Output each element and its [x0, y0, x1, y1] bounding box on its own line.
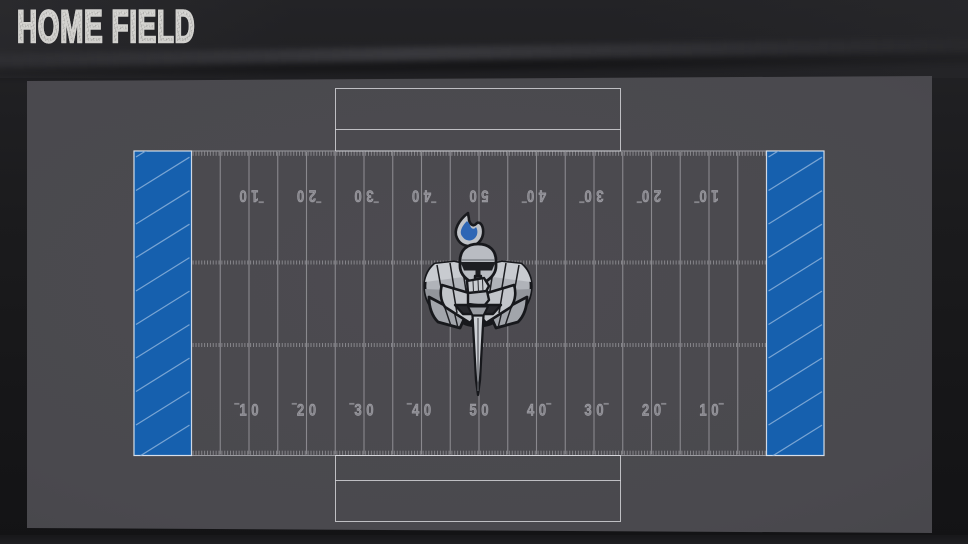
svg-text:0: 0: [354, 186, 361, 205]
svg-text:0: 0: [481, 401, 488, 420]
svg-text:3: 3: [596, 186, 603, 205]
svg-text:0: 0: [366, 401, 373, 420]
svg-text:0: 0: [654, 401, 661, 420]
svg-text:0: 0: [309, 401, 316, 420]
svg-text:1: 1: [711, 186, 719, 205]
svg-text:1: 1: [239, 401, 247, 420]
svg-text:0: 0: [584, 186, 591, 205]
svg-text:2: 2: [642, 401, 649, 420]
svg-text:0: 0: [596, 401, 603, 420]
svg-text:2: 2: [309, 186, 316, 205]
svg-text:0: 0: [527, 186, 534, 205]
svg-text:0: 0: [642, 186, 649, 205]
svg-text:4: 4: [527, 401, 535, 420]
svg-text:3: 3: [366, 186, 373, 205]
svg-text:2: 2: [654, 186, 661, 205]
svg-text:0: 0: [469, 186, 476, 205]
svg-text:0: 0: [412, 186, 419, 205]
svg-text:0: 0: [424, 401, 431, 420]
svg-text:4: 4: [423, 186, 431, 205]
svg-text:2: 2: [297, 401, 304, 420]
svg-text:1: 1: [699, 401, 707, 420]
svg-text:0: 0: [539, 401, 546, 420]
svg-text:3: 3: [354, 401, 361, 420]
svg-text:0: 0: [699, 186, 706, 205]
svg-text:0: 0: [297, 186, 304, 205]
svg-text:0: 0: [251, 401, 258, 420]
svg-text:5: 5: [481, 186, 489, 205]
svg-text:4: 4: [538, 186, 546, 205]
svg-text:3: 3: [584, 401, 591, 420]
svg-text:1: 1: [251, 186, 259, 205]
svg-text:0: 0: [239, 186, 246, 205]
svg-text:5: 5: [469, 401, 477, 420]
svg-text:0: 0: [711, 401, 718, 420]
svg-text:4: 4: [412, 401, 420, 420]
